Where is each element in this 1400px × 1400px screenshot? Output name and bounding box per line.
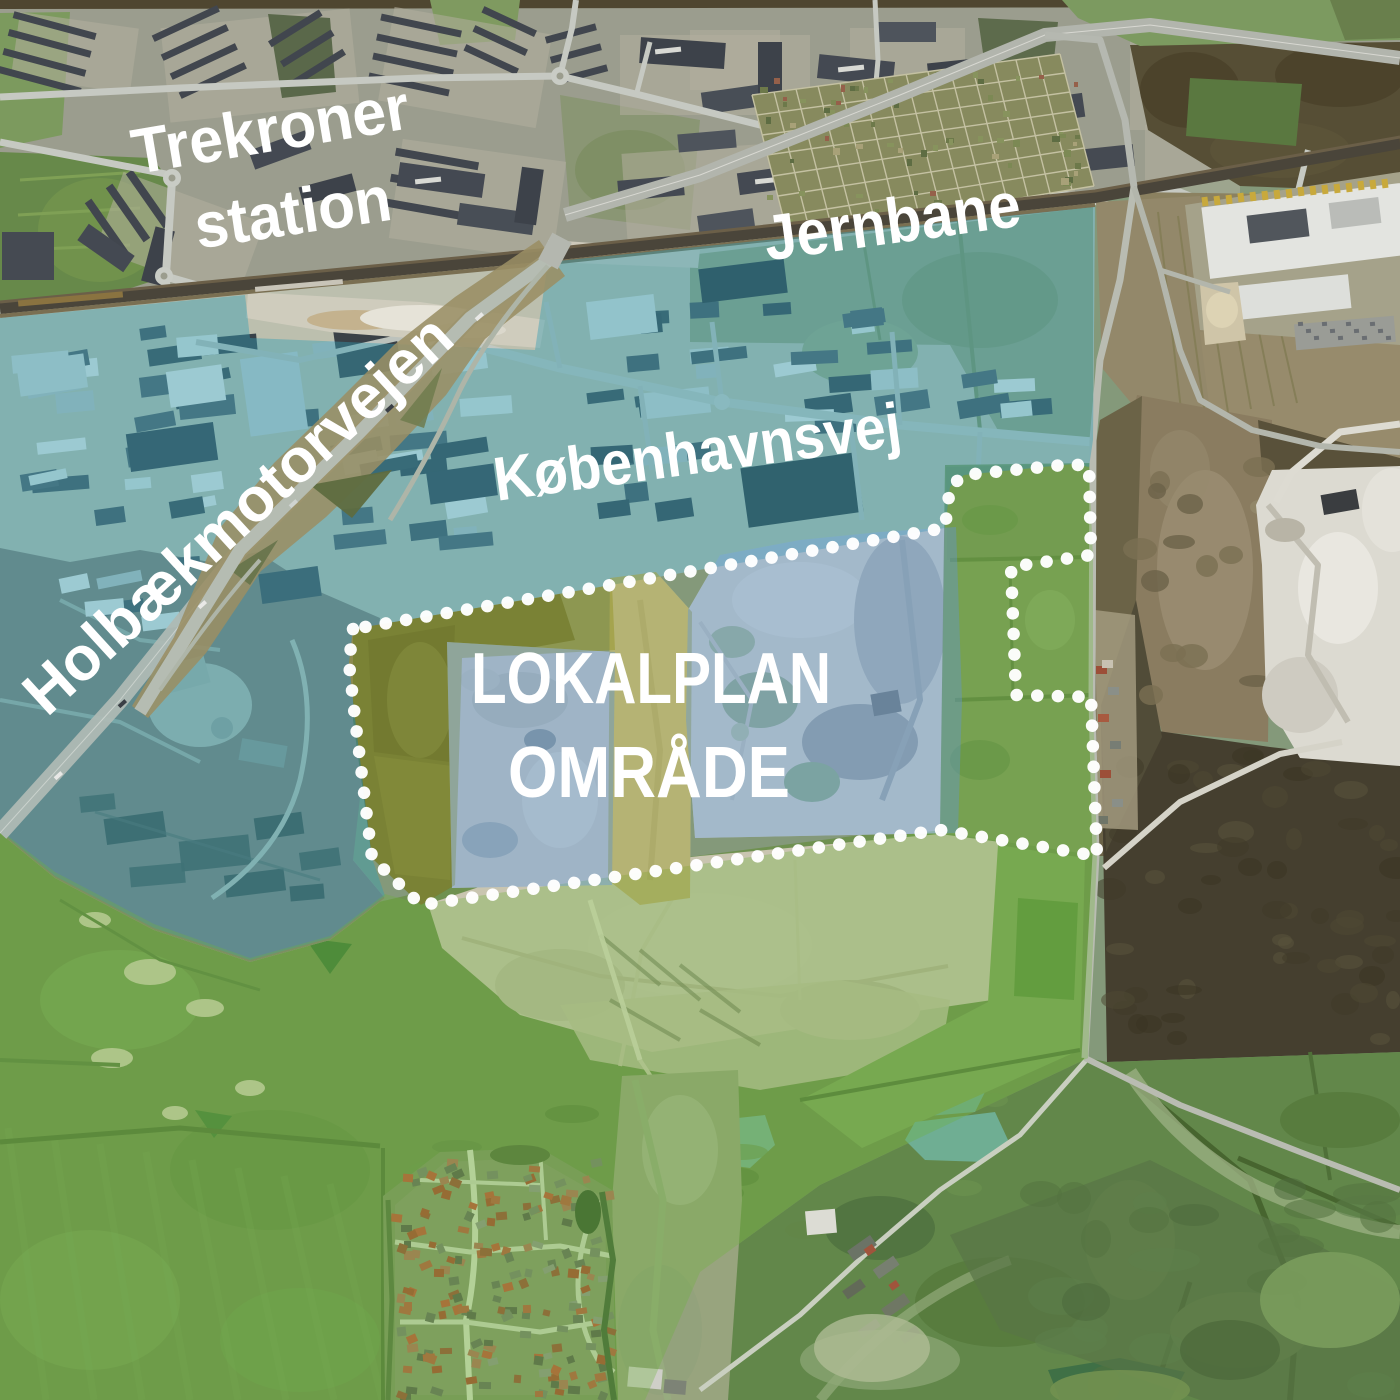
- svg-text:LOKALPLAN: LOKALPLAN: [471, 639, 831, 719]
- svg-text:OMRÅDE: OMRÅDE: [508, 733, 790, 813]
